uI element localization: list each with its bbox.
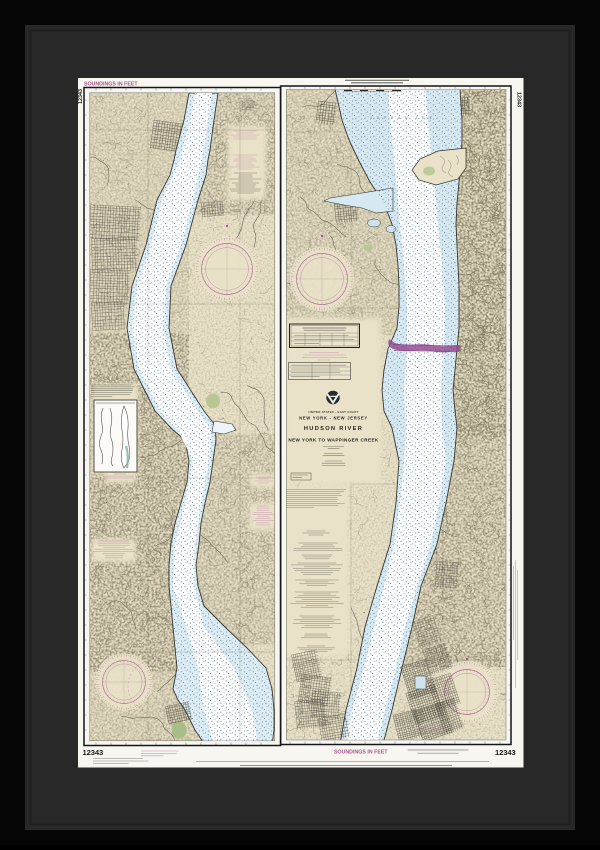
svg-text:NEW YORK TO WAPPINGER CREEK: NEW YORK TO WAPPINGER CREEK <box>288 438 379 443</box>
svg-text:12343: 12343 <box>78 89 84 104</box>
svg-text:SOUNDINGS IN FEET: SOUNDINGS IN FEET <box>334 750 388 756</box>
svg-text:NEW YORK - NEW JERSEY: NEW YORK - NEW JERSEY <box>299 416 368 421</box>
svg-text:12343: 12343 <box>83 748 104 757</box>
svg-text:SOUNDINGS IN FEET: SOUNDINGS IN FEET <box>84 82 138 88</box>
svg-text:T A P P A N Z E E: T A P P A N Z E E <box>370 116 434 120</box>
svg-text:12343: 12343 <box>516 92 522 107</box>
svg-text:HUDSON RIVER: HUDSON RIVER <box>304 426 363 432</box>
svg-text:UNITED STATES - EAST COAST: UNITED STATES - EAST COAST <box>308 410 358 414</box>
svg-text:12343: 12343 <box>495 748 516 757</box>
